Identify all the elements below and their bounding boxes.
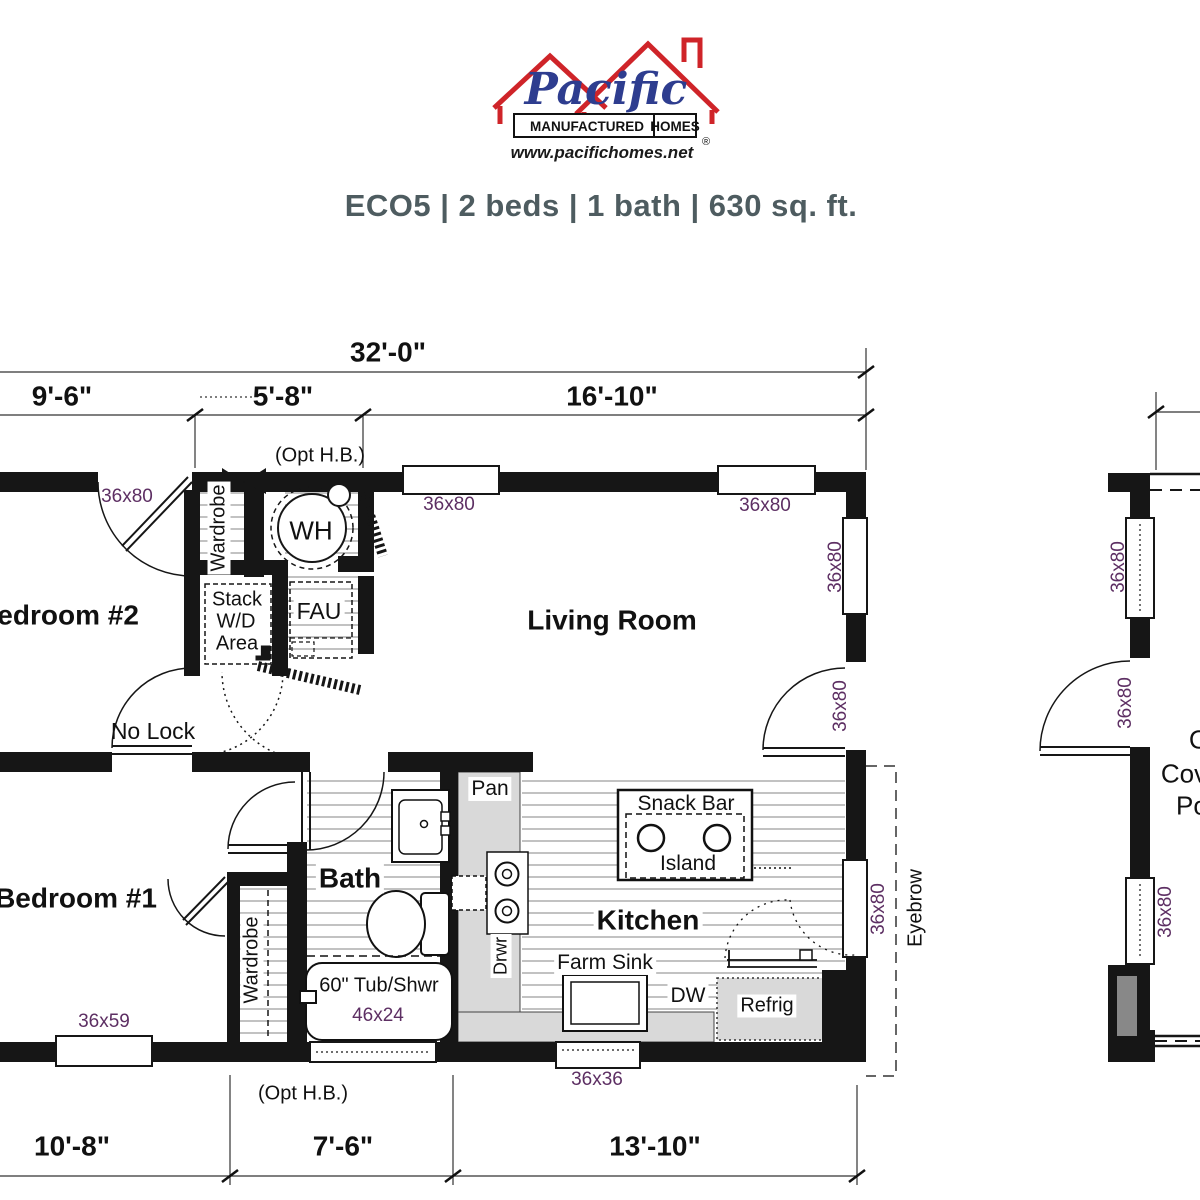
dim-top-mid: 5'-8" [253,381,313,410]
size-window: 36x80 [423,495,475,515]
room-kitchen: Kitchen [594,904,703,935]
bedroom1-door-leaf [228,845,297,853]
wall-passthrough [452,876,486,910]
snack-bar-label: Snack Bar [638,793,735,815]
size-bedroom1-window: 36x59 [78,1012,130,1032]
island-stool [638,825,664,851]
farm-sink-label: Farm Sink [554,951,656,975]
water-heater-label: WH [289,517,332,544]
dim-top-right: 16'-10" [566,381,658,410]
size-window: 36x80 [826,541,846,593]
farm-sink [563,975,647,1031]
island-label: Island [657,852,719,876]
pantry-label: Pan [468,777,511,801]
size-front-door: 36x80 [101,487,153,507]
stack-wd-label: W/D [214,611,259,634]
wardrobe1-label: Wardrobe [241,913,264,1006]
size-door: 36x80 [831,680,851,732]
wd-closet-swing [200,672,283,755]
dim-bottom-mid: 7'-6" [313,1131,373,1160]
dim-bottom-right: 13'-10" [609,1131,701,1160]
room-bedroom2: Bedroom #2 [0,600,139,629]
size-window-unit2: 36x80 [1109,541,1129,593]
island-stool [704,825,730,851]
dishwasher-label: DW [668,984,709,1008]
room-bedroom1: Bedroom #1 [0,883,157,912]
side-unit-label: Covered [1161,760,1200,787]
stack-wd-label: Stack [209,589,265,612]
room-bath: Bath [316,862,384,893]
wardrobe2-label: Wardrobe [208,481,231,574]
no-lock-label: No Lock [111,719,195,743]
dim-bottom-left: 10'-8" [34,1131,110,1160]
window [1126,518,1154,618]
floor-plan-drawing [0,0,1200,1200]
size-window-unit2: 36x80 [1156,886,1176,938]
size-door-unit2: 36x80 [1116,677,1136,729]
stack-wd-label: Area [213,633,261,656]
opt-hose-bib-top: (Opt H.B.) [275,446,365,467]
bedroom1-door-swing [228,782,295,849]
wardrobe1-door-leaf [183,877,228,925]
range-cooktop [487,852,528,934]
dim-top-left: 9'-6" [32,381,92,410]
floor-plan-page: Pacific MANUFACTURED HOMES ® www.pacific… [0,0,1200,1200]
drawer-label: Drwr [491,934,512,978]
opt-hose-bib-bottom: (Opt H.B.) [258,1084,348,1105]
size-tub: 46x24 [352,1006,404,1026]
living-room-door-leaf [763,748,845,756]
tub-label: 60" Tub/Shwr [319,976,438,997]
no-lock-door-leaf [112,746,192,754]
size-window: 36x80 [739,496,791,516]
size-kitchen-window: 36x36 [571,1070,623,1090]
eyebrow-label: Eyebrow [906,869,927,947]
dim-overall-width: 32'-0" [350,337,426,366]
size-window: 36x80 [869,883,889,935]
fau-label: FAU [294,598,345,624]
refrigerator-label: Refrig [737,995,796,1018]
toilet-bowl [367,891,425,957]
room-living: Living Room [527,605,697,634]
side-unit-label: Porch [1176,792,1200,819]
side-unit-label: Opt [1189,726,1200,753]
